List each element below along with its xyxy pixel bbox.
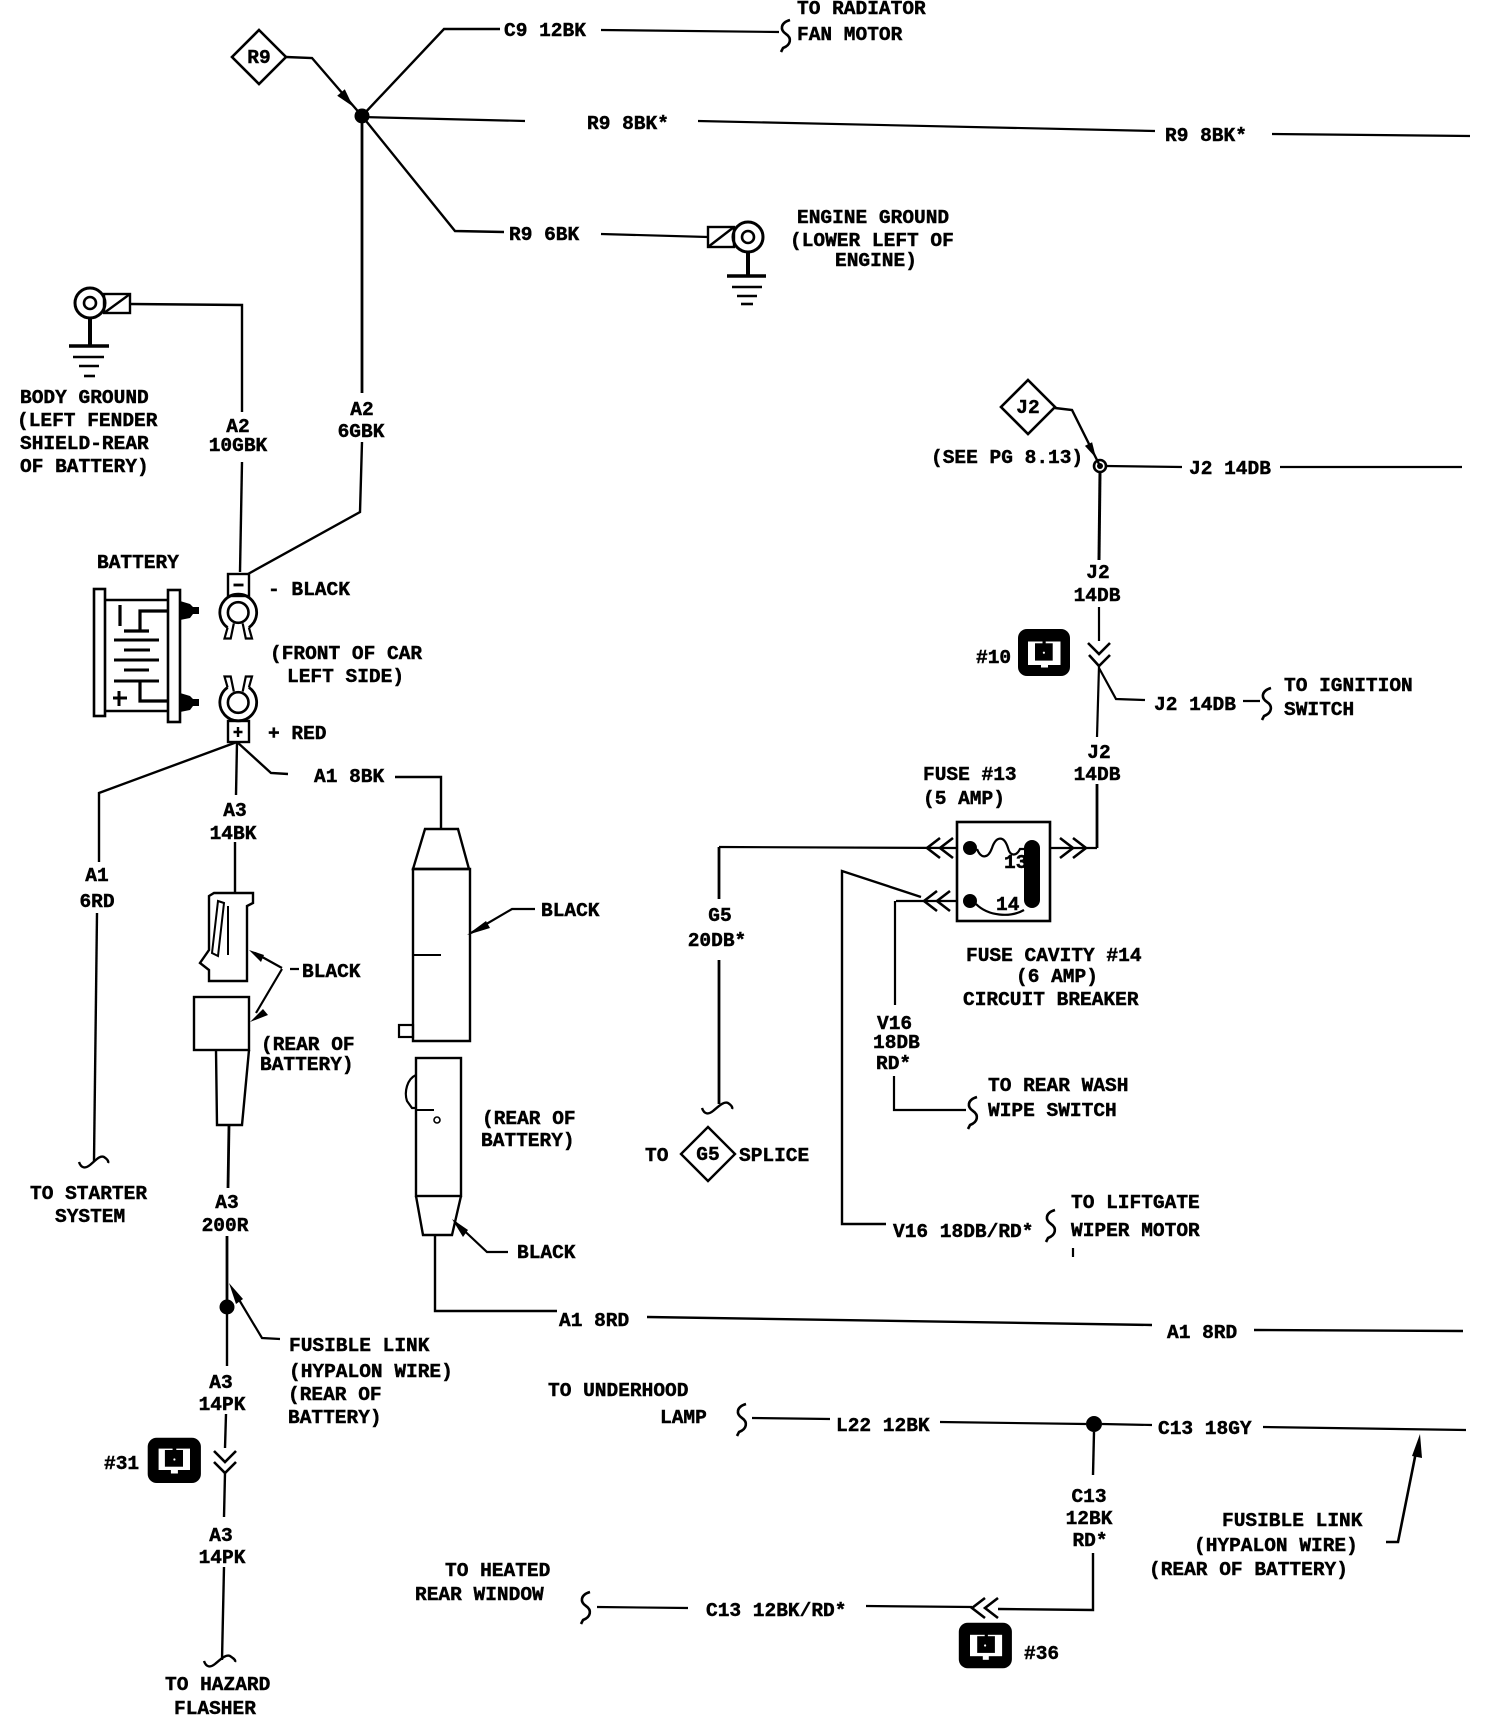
svg-text:J2: J2 xyxy=(1086,562,1109,584)
svg-text:R9 8BK*: R9 8BK* xyxy=(587,113,669,135)
svg-text:C13 18GY: C13 18GY xyxy=(1158,1418,1252,1440)
svg-text:RD*: RD* xyxy=(876,1053,911,1075)
svg-text:RD*: RD* xyxy=(1072,1530,1107,1552)
svg-text:CIRCUIT BREAKER: CIRCUIT BREAKER xyxy=(963,989,1139,1011)
svg-text:(LOWER LEFT OF: (LOWER LEFT OF xyxy=(790,230,954,252)
svg-text:A1 8BK: A1 8BK xyxy=(314,766,385,788)
svg-text:14PK: 14PK xyxy=(199,1394,246,1416)
svg-text:FUSIBLE LINK: FUSIBLE LINK xyxy=(1222,1510,1363,1532)
svg-text:LAMP: LAMP xyxy=(660,1407,707,1429)
svg-text:#36: #36 xyxy=(1024,1643,1059,1665)
svg-text:BATTERY): BATTERY) xyxy=(288,1407,382,1429)
svg-text:(HYPALON WIRE): (HYPALON WIRE) xyxy=(1194,1535,1358,1557)
svg-text:BLACK: BLACK xyxy=(517,1242,576,1264)
svg-text:J2: J2 xyxy=(1087,742,1110,764)
svg-text:TO STARTER: TO STARTER xyxy=(30,1183,147,1205)
svg-text:TO IGNITION: TO IGNITION xyxy=(1284,675,1413,697)
svg-text:13: 13 xyxy=(1004,852,1027,874)
svg-text:ENGINE GROUND: ENGINE GROUND xyxy=(797,207,949,229)
svg-text:TO UNDERHOOD: TO UNDERHOOD xyxy=(548,1380,688,1402)
svg-text:TO: TO xyxy=(645,1145,669,1167)
svg-text:SWITCH: SWITCH xyxy=(1284,699,1354,721)
svg-text:BODY GROUND: BODY GROUND xyxy=(20,387,149,409)
svg-text:OF BATTERY): OF BATTERY) xyxy=(20,456,149,478)
svg-text:(HYPALON WIRE): (HYPALON WIRE) xyxy=(289,1361,453,1383)
svg-text:REAR WINDOW: REAR WINDOW xyxy=(415,1584,544,1606)
svg-text:14DB: 14DB xyxy=(1074,764,1121,786)
svg-text:LEFT SIDE): LEFT SIDE) xyxy=(287,666,404,688)
svg-text:SYSTEM: SYSTEM xyxy=(55,1206,125,1228)
svg-text:#31: #31 xyxy=(104,1453,139,1475)
svg-text:A1 8RD: A1 8RD xyxy=(559,1310,629,1332)
svg-text:A3: A3 xyxy=(209,1372,232,1394)
svg-text:14PK: 14PK xyxy=(199,1547,246,1569)
svg-text:V16 18DB/RD*: V16 18DB/RD* xyxy=(893,1221,1033,1243)
svg-text:TO LIFTGATE: TO LIFTGATE xyxy=(1071,1192,1200,1214)
svg-text:A1 8RD: A1 8RD xyxy=(1167,1322,1237,1344)
svg-text:(REAR OF BATTERY): (REAR OF BATTERY) xyxy=(1149,1559,1348,1581)
svg-text:L22 12BK: L22 12BK xyxy=(836,1415,930,1437)
svg-text:(REAR OF: (REAR OF xyxy=(288,1384,382,1406)
svg-text:14DB: 14DB xyxy=(1074,585,1121,607)
svg-text:(SEE PG 8.13): (SEE PG 8.13) xyxy=(931,447,1083,469)
svg-text:A3: A3 xyxy=(209,1525,232,1547)
svg-text:(5 AMP): (5 AMP) xyxy=(923,788,1005,810)
svg-text:BATTERY): BATTERY) xyxy=(481,1130,575,1152)
svg-text:+ RED: + RED xyxy=(268,723,327,745)
svg-text:12BK: 12BK xyxy=(1066,1508,1113,1530)
svg-text:FAN MOTOR: FAN MOTOR xyxy=(797,24,903,46)
svg-text:TO HAZARD: TO HAZARD xyxy=(165,1674,270,1696)
svg-text:BATTERY): BATTERY) xyxy=(260,1054,354,1076)
svg-text:J2: J2 xyxy=(1016,397,1039,419)
svg-text:BLACK: BLACK xyxy=(302,961,361,983)
svg-text:ENGINE): ENGINE) xyxy=(835,250,917,272)
svg-text:FUSE CAVITY #14: FUSE CAVITY #14 xyxy=(966,945,1142,967)
svg-text:R9 6BK: R9 6BK xyxy=(509,224,580,246)
svg-text:WIPE SWITCH: WIPE SWITCH xyxy=(988,1100,1117,1122)
svg-text:J2 14DB: J2 14DB xyxy=(1154,694,1236,716)
svg-text:R9: R9 xyxy=(247,47,270,69)
svg-text:20DB*: 20DB* xyxy=(688,930,747,952)
svg-text:#10: #10 xyxy=(976,647,1011,669)
svg-text:BLACK: BLACK xyxy=(541,900,600,922)
svg-text:G5: G5 xyxy=(696,1144,719,1166)
svg-text:TO REAR WASH: TO REAR WASH xyxy=(988,1075,1128,1097)
svg-text:R9 8BK*: R9 8BK* xyxy=(1165,125,1247,147)
svg-text:C13 12BK/RD*: C13 12BK/RD* xyxy=(706,1600,846,1622)
svg-text:WIPER MOTOR: WIPER MOTOR xyxy=(1071,1220,1200,1242)
svg-text:(LEFT FENDER: (LEFT FENDER xyxy=(17,410,158,432)
svg-text:A3: A3 xyxy=(223,800,246,822)
svg-text:A2: A2 xyxy=(350,399,373,421)
svg-text:(6 AMP): (6 AMP) xyxy=(1016,966,1098,988)
svg-text:A1: A1 xyxy=(85,865,108,887)
svg-text:200R: 200R xyxy=(202,1215,249,1237)
svg-text:SHIELD-REAR: SHIELD-REAR xyxy=(20,433,149,455)
svg-text:(REAR OF: (REAR OF xyxy=(482,1108,576,1130)
svg-text:(FRONT OF CAR: (FRONT OF CAR xyxy=(270,643,422,665)
svg-text:10GBK: 10GBK xyxy=(209,435,268,457)
svg-text:TO HEATED: TO HEATED xyxy=(445,1560,550,1582)
svg-text:C13: C13 xyxy=(1071,1486,1106,1508)
svg-text:BATTERY: BATTERY xyxy=(97,552,179,574)
svg-text:C9 12BK: C9 12BK xyxy=(504,20,586,42)
svg-text:18DB: 18DB xyxy=(873,1032,920,1054)
svg-text:A3: A3 xyxy=(215,1192,238,1214)
svg-text:FLASHER: FLASHER xyxy=(174,1698,256,1716)
svg-text:(REAR OF: (REAR OF xyxy=(261,1034,355,1056)
svg-text:FUSE #13: FUSE #13 xyxy=(923,764,1017,786)
svg-text:TO RADIATOR: TO RADIATOR xyxy=(797,0,926,20)
svg-text:6RD: 6RD xyxy=(79,891,114,913)
svg-text:6GBK: 6GBK xyxy=(338,421,385,443)
svg-text:FUSIBLE LINK: FUSIBLE LINK xyxy=(289,1335,430,1357)
svg-text:14BK: 14BK xyxy=(210,823,257,845)
svg-text:J2 14DB: J2 14DB xyxy=(1189,458,1271,480)
svg-text:G5: G5 xyxy=(708,905,731,927)
svg-text:SPLICE: SPLICE xyxy=(739,1145,809,1167)
svg-text:- BLACK: - BLACK xyxy=(268,579,350,601)
